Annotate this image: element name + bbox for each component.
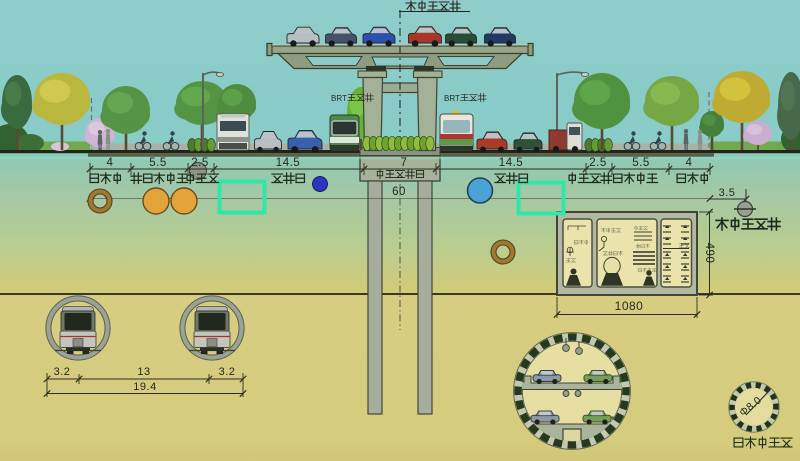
svg-text:7: 7 [401, 157, 408, 169]
svg-text:19.4: 19.4 [133, 381, 156, 393]
svg-text:BRT: BRT [444, 94, 460, 103]
svg-text:4: 4 [686, 157, 693, 169]
svg-text:490: 490 [703, 243, 715, 264]
svg-text:60: 60 [392, 186, 406, 198]
svg-text:BRT: BRT [331, 94, 347, 103]
svg-text:2.5: 2.5 [191, 157, 209, 169]
svg-text:4: 4 [107, 157, 114, 169]
svg-text:1080: 1080 [615, 299, 644, 313]
svg-text:3.5: 3.5 [719, 187, 736, 199]
svg-text:13: 13 [137, 366, 150, 378]
svg-text:3.2: 3.2 [54, 366, 71, 378]
svg-text:2.5: 2.5 [589, 157, 607, 169]
svg-text:14.5: 14.5 [276, 157, 300, 169]
svg-text:3.2: 3.2 [219, 366, 236, 378]
svg-text:5.5: 5.5 [149, 157, 167, 169]
svg-text:14.5: 14.5 [499, 157, 523, 169]
svg-text:5.5: 5.5 [632, 157, 650, 169]
